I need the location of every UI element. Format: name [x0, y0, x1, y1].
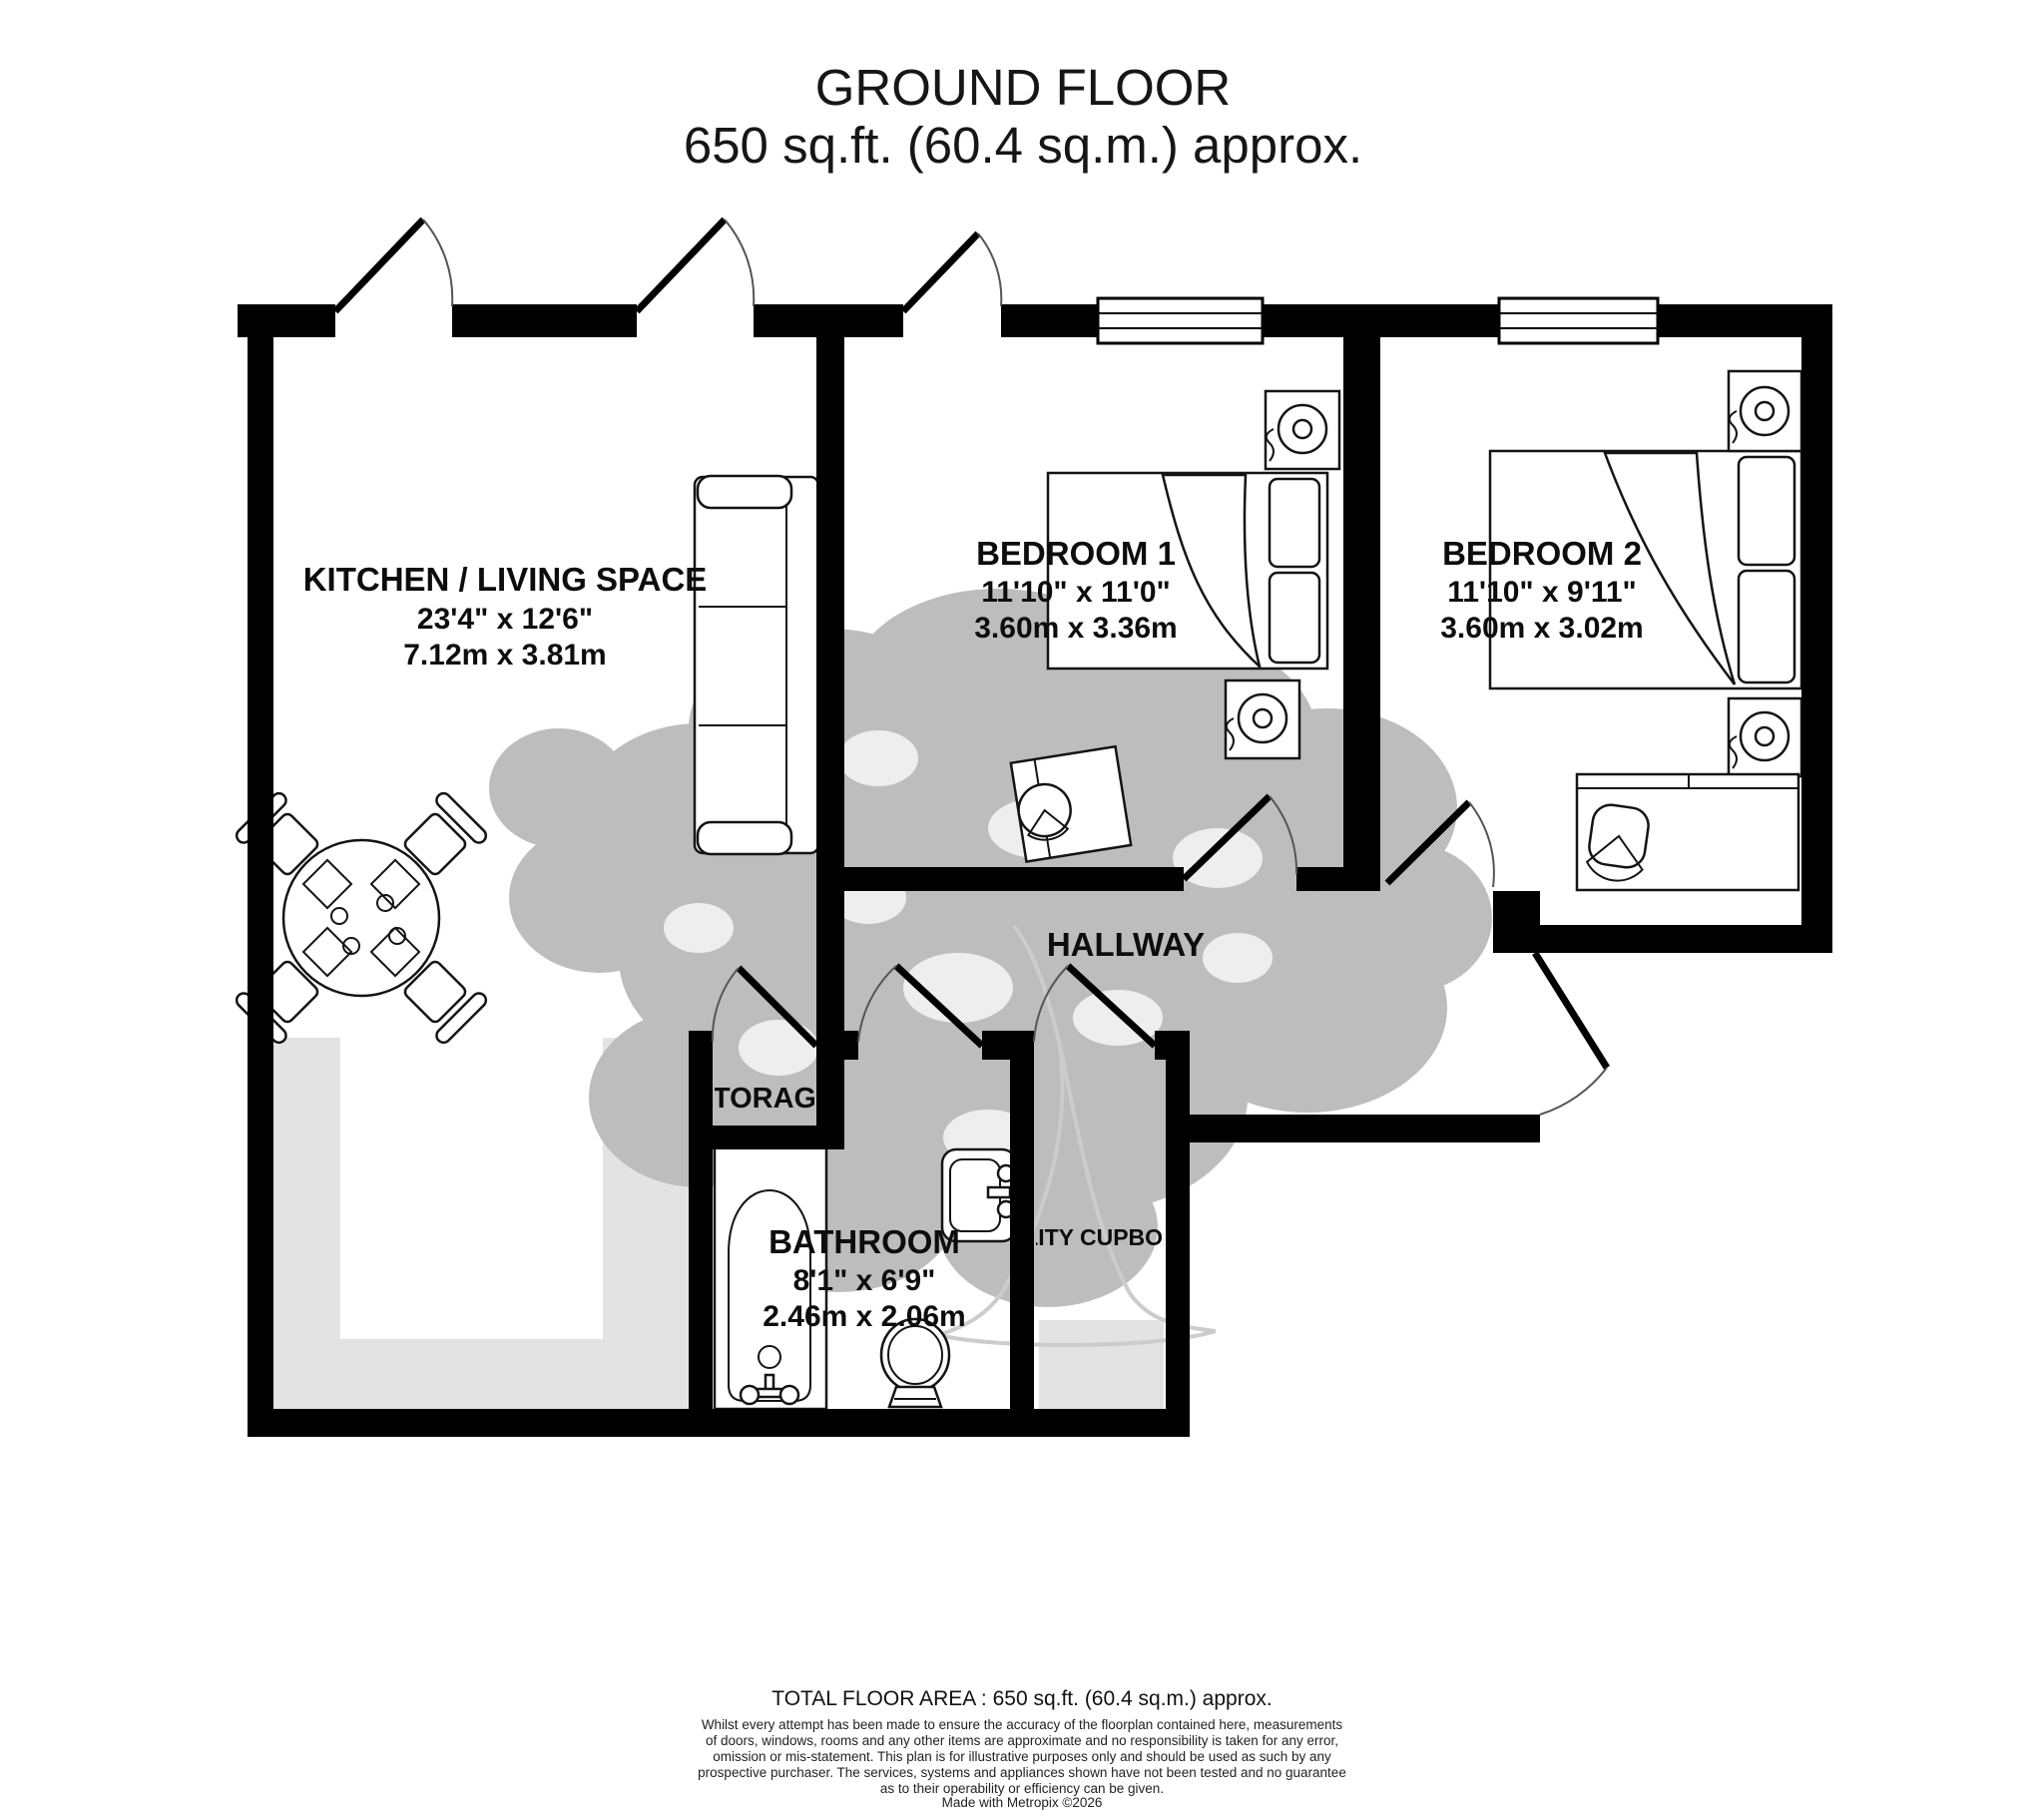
svg-text:11'10" x 9'11": 11'10" x 9'11"	[1447, 576, 1637, 609]
bedroom2-south-wall	[1540, 925, 1832, 953]
window	[1499, 298, 1658, 343]
dining-table	[283, 840, 439, 996]
storage-bottom-wall	[689, 1126, 844, 1149]
desk-bedroom2	[1577, 774, 1798, 890]
svg-text:KITCHEN / LIVING SPACE: KITCHEN / LIVING SPACE	[303, 561, 708, 598]
top-wall	[1001, 304, 1098, 337]
kitchen-divider-wall	[816, 337, 844, 1149]
svg-text:23'4" x 12'6": 23'4" x 12'6"	[417, 603, 593, 636]
svg-text:11'10" x 11'0": 11'10" x 11'0"	[981, 576, 1171, 609]
bedroom1-label: BEDROOM 1 11'10" x 11'0" 3.60m x 3.36m	[974, 535, 1177, 645]
metropix-credit: Made with Metropix ©2026	[942, 1795, 1103, 1810]
total-floor-area: TOTAL FLOOR AREA : 650 sq.ft. (60.4 sq.m…	[771, 1687, 1272, 1710]
footer: TOTAL FLOOR AREA : 650 sq.ft. (60.4 sq.m…	[698, 1687, 1346, 1810]
door-bedroom1-top	[903, 233, 1001, 311]
left-wall	[248, 304, 273, 1437]
disclaimer-line: Whilst every attempt has been made to en…	[702, 1717, 1343, 1732]
door-entrance	[1535, 953, 1607, 1115]
bedroom-divider-wall	[1343, 337, 1380, 891]
utility-right-wall	[1166, 1045, 1190, 1409]
svg-text:2.46m x 2.06m: 2.46m x 2.06m	[763, 1300, 965, 1333]
top-wall	[754, 304, 903, 337]
floorplan-page: GROUND FLOOR 650 sq.ft. (60.4 sq.m.) app…	[0, 0, 2044, 1810]
disclaimer-line: omission or mis-statement. This plan is …	[713, 1749, 1331, 1764]
hallway-south-wall	[1166, 1115, 1540, 1142]
utility-left-wall	[1010, 1045, 1034, 1409]
svg-text:BEDROOM 2: BEDROOM 2	[1442, 535, 1642, 572]
top-wall	[452, 304, 637, 337]
page-title: GROUND FLOOR	[815, 59, 1232, 116]
bathroom-label: BATHROOM 8'1" x 6'9" 2.46m x 2.06m	[763, 1223, 965, 1333]
bedroom2-label: BEDROOM 2 11'10" x 9'11" 3.60m x 3.02m	[1440, 535, 1643, 645]
svg-text:8'1" x 6'9": 8'1" x 6'9"	[793, 1264, 936, 1297]
bedside-table	[1729, 371, 1801, 451]
hallway-label: HALLWAY	[1047, 926, 1205, 963]
hall-south-stub	[838, 1031, 858, 1060]
utility-floor-shade	[1039, 1320, 1164, 1409]
disclaimer-line: of doors, windows, rooms and any other i…	[706, 1733, 1338, 1748]
disclaimer-line: as to their operability or efficiency ca…	[880, 1781, 1164, 1796]
door-kitchen-2	[637, 220, 754, 311]
bedside-table	[1226, 680, 1299, 758]
bottom-wall	[248, 1409, 1190, 1437]
kitchen-label: KITCHEN / LIVING SPACE 23'4" x 12'6" 7.1…	[303, 561, 708, 672]
svg-text:7.12m x 3.81m: 7.12m x 3.81m	[403, 639, 606, 672]
bedside-table	[1266, 391, 1339, 469]
svg-text:3.60m x 3.36m: 3.60m x 3.36m	[974, 612, 1177, 645]
door-kitchen-1	[335, 220, 452, 311]
svg-text:BEDROOM 1: BEDROOM 1	[976, 535, 1176, 572]
page-subtitle: 650 sq.ft. (60.4 sq.m.) approx.	[684, 117, 1362, 174]
bedroom1-south-wall	[844, 867, 1184, 891]
window	[1098, 298, 1263, 343]
kitchen-floor-shade	[248, 1339, 689, 1409]
svg-text:BATHROOM: BATHROOM	[768, 1223, 960, 1260]
bedside-table	[1729, 698, 1801, 776]
top-wall	[1263, 304, 1499, 337]
svg-text:3.60m x 3.02m: 3.60m x 3.02m	[1440, 612, 1643, 645]
sofa	[695, 476, 818, 854]
disclaimer-line: prospective purchaser. The services, sys…	[698, 1765, 1346, 1780]
floorplan-svg: GROUND FLOOR 650 sq.ft. (60.4 sq.m.) app…	[0, 0, 2044, 1810]
kitchen-bathroom-wall	[689, 1031, 713, 1409]
entry-corner-wall	[1493, 891, 1540, 953]
right-wall	[1801, 304, 1832, 953]
desk-bedroom1	[1011, 746, 1131, 861]
